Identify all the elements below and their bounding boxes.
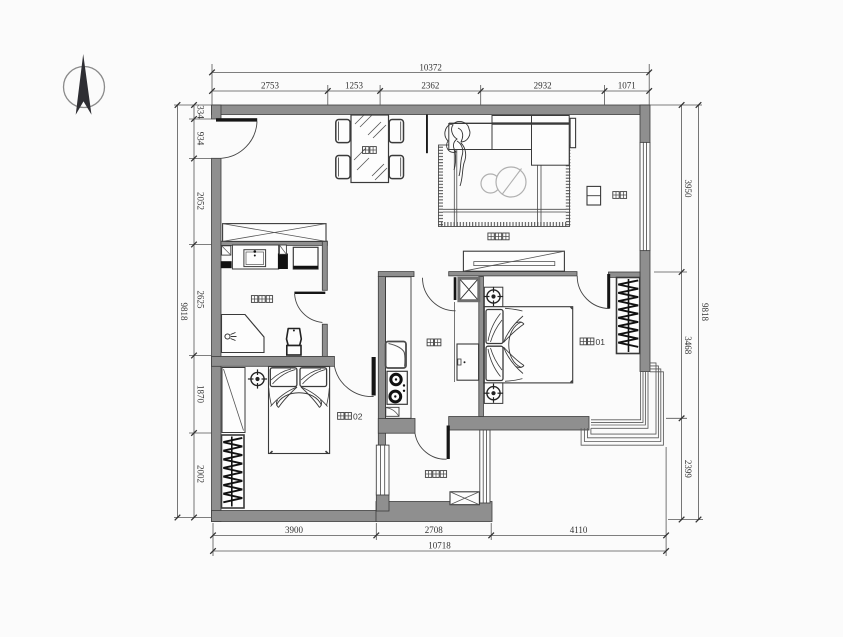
svg-text:9818: 9818 [179, 303, 189, 322]
svg-text:2362: 2362 [421, 81, 439, 91]
svg-text:01: 01 [596, 337, 606, 347]
svg-text:334: 334 [195, 105, 205, 119]
svg-text:1870: 1870 [195, 385, 205, 404]
svg-text:3900: 3900 [285, 525, 304, 535]
svg-text:2932: 2932 [534, 81, 552, 91]
svg-text:02: 02 [353, 411, 363, 421]
svg-text:10718: 10718 [428, 541, 451, 551]
svg-text:9818: 9818 [700, 303, 710, 322]
svg-text:2399: 2399 [683, 460, 693, 479]
svg-text:2625: 2625 [195, 291, 205, 310]
svg-text:1253: 1253 [345, 81, 364, 91]
svg-text:10372: 10372 [419, 63, 442, 73]
svg-text:4110: 4110 [570, 525, 588, 535]
svg-text:3950: 3950 [683, 180, 693, 199]
svg-text:2708: 2708 [425, 525, 444, 535]
svg-text:1071: 1071 [618, 81, 636, 91]
svg-text:2052: 2052 [195, 192, 205, 210]
svg-text:2002: 2002 [195, 465, 205, 483]
svg-text:934: 934 [195, 132, 205, 146]
svg-text:2753: 2753 [261, 81, 280, 91]
svg-text:3468: 3468 [683, 336, 693, 355]
